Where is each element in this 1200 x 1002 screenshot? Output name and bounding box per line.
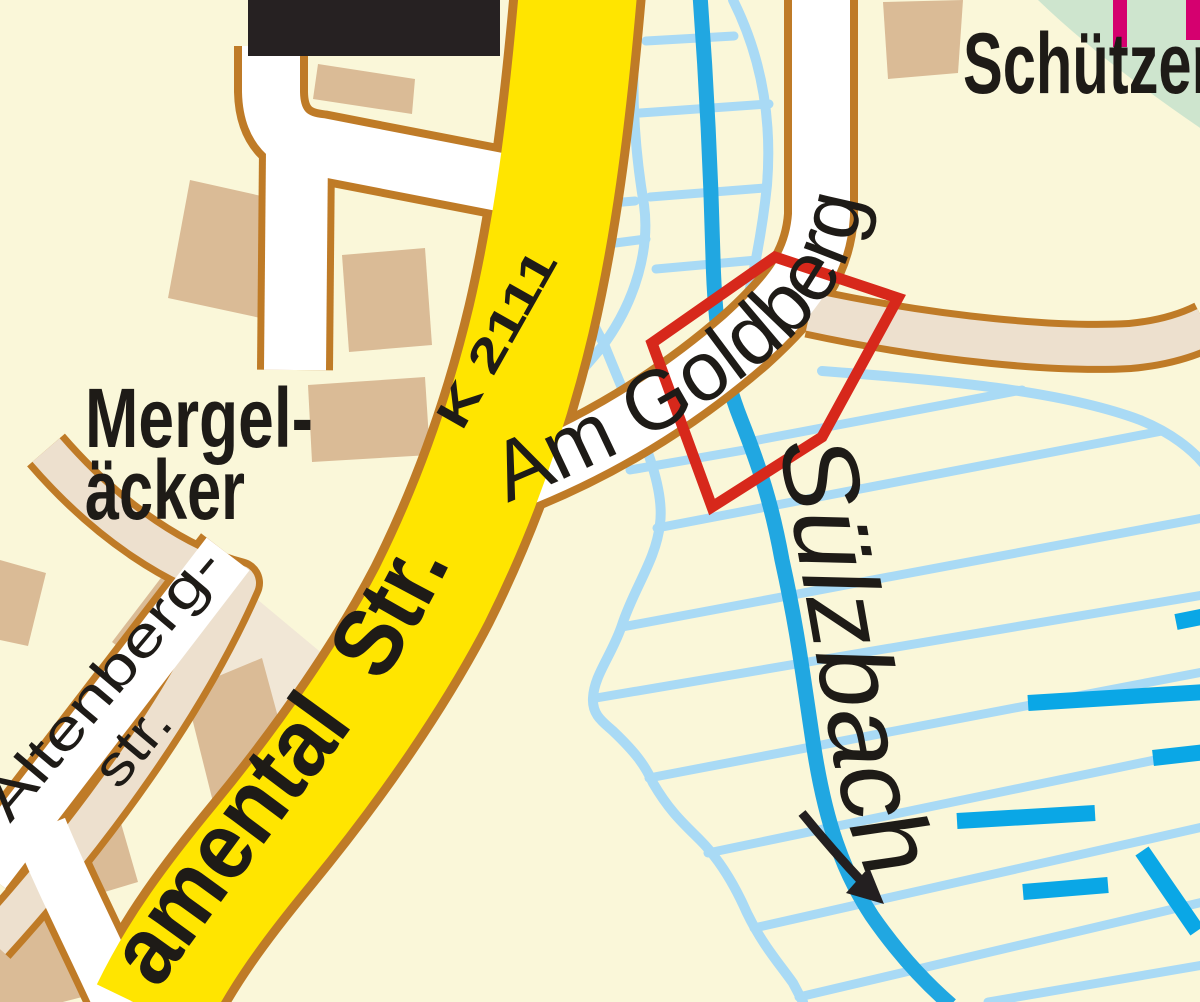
- minor-road: [295, 150, 297, 370]
- label-greenspace: Schützen: [963, 16, 1200, 112]
- map-viewport: Schützen Mergel- äcker Altenberg- str. K…: [0, 0, 1200, 1002]
- label-district-line2: äcker: [85, 443, 245, 537]
- drain-dash: [1023, 885, 1108, 892]
- drain-dash: [957, 813, 1095, 821]
- wetland-hatch: [646, 36, 734, 41]
- building: [883, 0, 963, 79]
- map-canvas[interactable]: Schützen Mergel- äcker Altenberg- str. K…: [0, 0, 1200, 1002]
- drain-dash: [1176, 616, 1200, 622]
- building-dark: [248, 0, 500, 56]
- building: [308, 377, 430, 462]
- drain-dash: [1028, 692, 1200, 703]
- building: [342, 248, 432, 352]
- drain-dash: [1153, 752, 1200, 758]
